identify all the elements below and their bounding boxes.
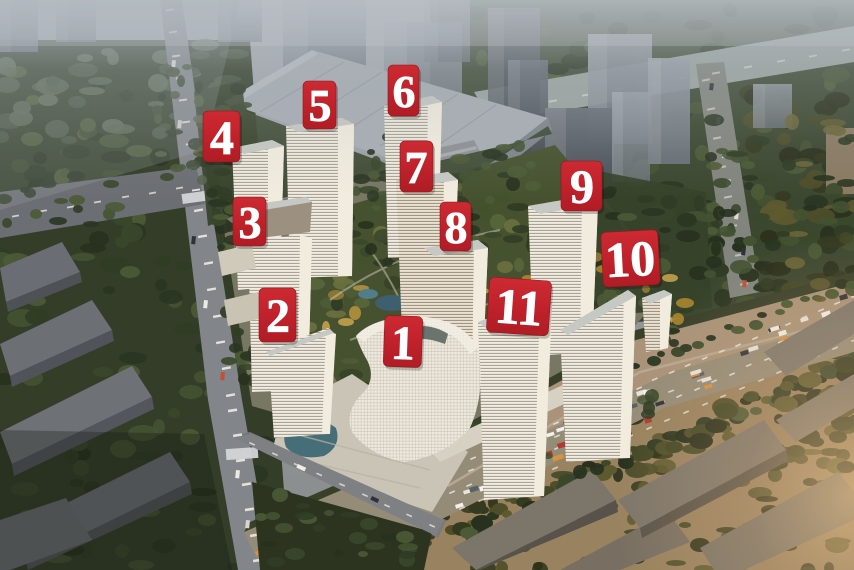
svg-text:11: 11 xyxy=(493,277,544,336)
svg-text:5: 5 xyxy=(309,80,332,131)
svg-text:3: 3 xyxy=(239,197,262,248)
svg-text:8: 8 xyxy=(445,202,468,253)
svg-text:2: 2 xyxy=(266,290,290,343)
svg-text:4: 4 xyxy=(210,112,234,165)
svg-text:9: 9 xyxy=(570,161,594,214)
svg-text:7: 7 xyxy=(405,142,428,193)
svg-text:10: 10 xyxy=(604,230,657,289)
svg-text:6: 6 xyxy=(393,66,416,117)
svg-text:1: 1 xyxy=(390,317,416,371)
